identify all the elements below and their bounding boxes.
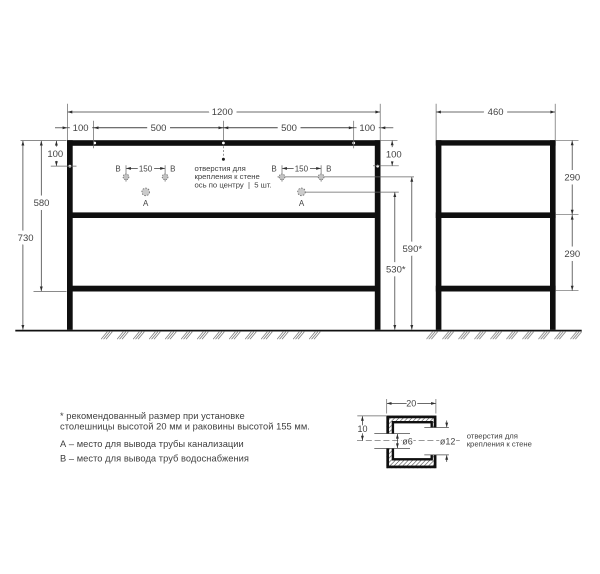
svg-text:В – место для вывода труб водо: В – место для вывода труб водоснабжения — [60, 454, 249, 464]
svg-text:100: 100 — [359, 123, 375, 134]
svg-text:150: 150 — [295, 164, 309, 173]
svg-text:ось по центру | 5 шт.: ось по центру | 5 шт. — [195, 181, 272, 190]
svg-text:В: В — [271, 165, 276, 174]
svg-text:ø6: ø6 — [402, 437, 413, 447]
svg-text:А – место для вывода трубы кан: А – место для вывода трубы канализации — [60, 439, 244, 449]
svg-text:290: 290 — [564, 249, 580, 260]
svg-text:730: 730 — [18, 233, 34, 244]
svg-text:* рекомендованный размер при у: * рекомендованный размер при установке — [60, 411, 245, 421]
svg-text:10: 10 — [357, 424, 367, 434]
svg-text:100: 100 — [73, 123, 89, 134]
svg-text:100: 100 — [47, 149, 63, 160]
svg-text:столешницы высотой 20 мм и рак: столешницы высотой 20 мм и раковины высо… — [60, 422, 310, 432]
svg-text:590*: 590* — [403, 244, 423, 255]
svg-text:460: 460 — [488, 107, 504, 118]
svg-text:500: 500 — [281, 123, 297, 134]
svg-text:А: А — [143, 199, 149, 208]
svg-text:150: 150 — [139, 164, 153, 173]
svg-text:В: В — [326, 165, 331, 174]
svg-text:крепления к стене: крепления к стене — [467, 440, 532, 449]
svg-text:А: А — [299, 199, 305, 208]
svg-text:100: 100 — [386, 150, 402, 161]
svg-text:290: 290 — [564, 172, 580, 183]
svg-text:1200: 1200 — [212, 107, 233, 118]
svg-text:В: В — [170, 165, 175, 174]
svg-text:530*: 530* — [386, 265, 406, 276]
svg-text:ø12: ø12 — [440, 437, 456, 447]
svg-text:580: 580 — [34, 198, 50, 209]
svg-text:В: В — [115, 165, 120, 174]
svg-text:500: 500 — [151, 123, 167, 134]
svg-text:20: 20 — [406, 399, 416, 409]
